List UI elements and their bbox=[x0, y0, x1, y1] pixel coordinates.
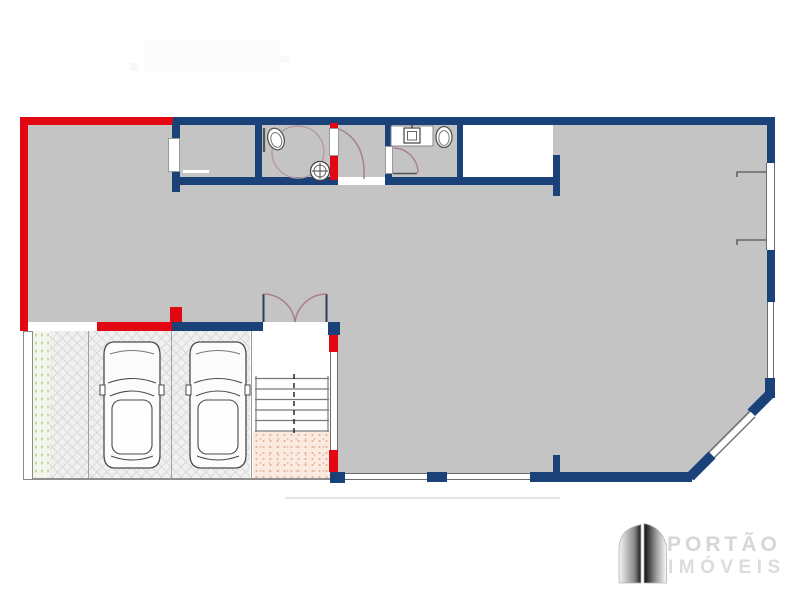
staircase-icon bbox=[255, 376, 329, 432]
plan-overlay bbox=[0, 0, 800, 600]
window-jamb-tick bbox=[737, 172, 767, 177]
floor-plan: PORTÃO IMÓVEIS bbox=[0, 0, 800, 600]
door-swing-icon bbox=[393, 148, 418, 174]
window-jamb-tick bbox=[737, 240, 767, 245]
logo-text-line1: PORTÃO bbox=[667, 533, 797, 557]
logo-text-line2: IMÓVEIS bbox=[668, 557, 798, 579]
chamfer-corner bbox=[690, 393, 771, 477]
toilet-icon bbox=[436, 127, 452, 148]
round-washbasin-icon bbox=[311, 162, 330, 181]
double-door-icon bbox=[264, 294, 327, 322]
door-swing-icon bbox=[339, 129, 364, 179]
gate-logo-icon bbox=[619, 524, 667, 584]
